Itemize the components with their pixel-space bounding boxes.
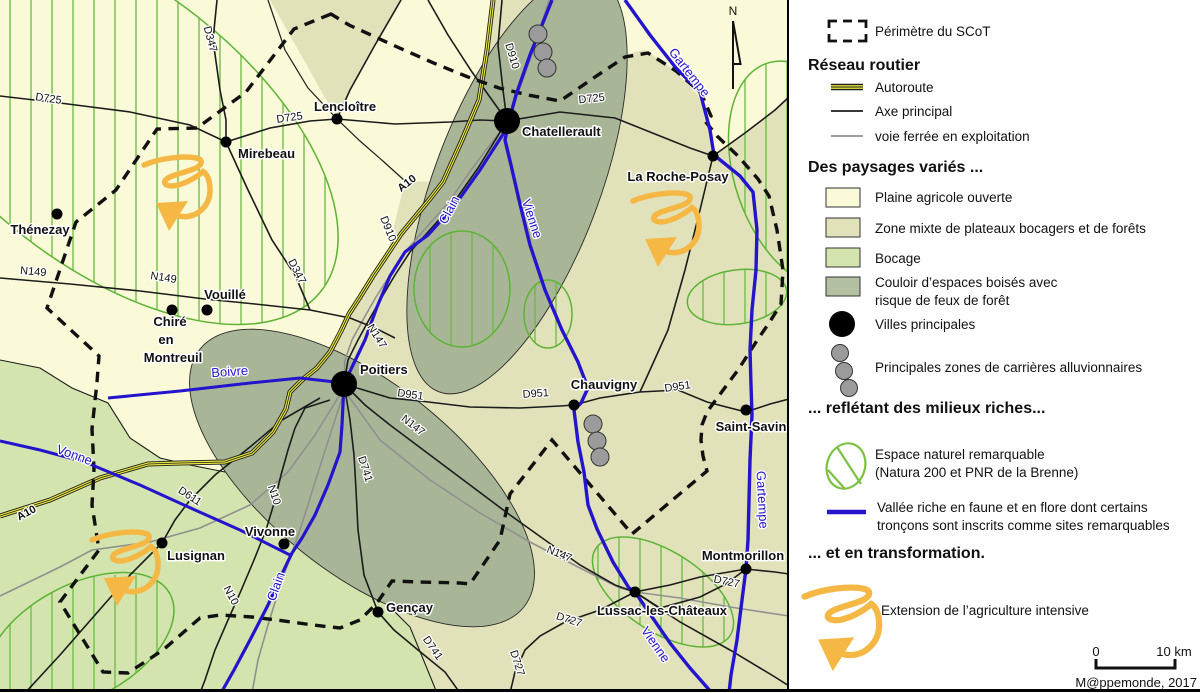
svg-text:Plaine agricole ouverte: Plaine agricole ouverte — [875, 190, 1012, 205]
svg-text:Principales zones de carrières: Principales zones de carrières alluvionn… — [875, 360, 1142, 375]
svg-text:Boivre: Boivre — [211, 363, 249, 381]
svg-text:Vivonne: Vivonne — [245, 524, 295, 539]
svg-text:Mirebeau: Mirebeau — [238, 146, 295, 161]
svg-text:en: en — [158, 332, 173, 347]
svg-text:Vallée riche en faune et en fl: Vallée riche en faune et en flore dont c… — [877, 500, 1148, 515]
svg-text:... et en transformation.: ... et en transformation. — [808, 545, 985, 562]
svg-text:Bocage: Bocage — [875, 251, 921, 266]
svg-text:Des paysages variés ...: Des paysages variés ... — [808, 159, 983, 176]
svg-text:Axe principal: Axe principal — [875, 104, 952, 119]
svg-text:10 km: 10 km — [1156, 644, 1191, 659]
svg-text:N149: N149 — [20, 265, 47, 279]
svg-text:risque de feux de forêt: risque de feux de forêt — [875, 293, 1010, 308]
svg-text:La Roche-Posay: La Roche-Posay — [627, 169, 729, 184]
svg-text:Villes principales: Villes principales — [875, 317, 976, 332]
svg-text:Réseau routier: Réseau routier — [808, 57, 920, 74]
svg-text:Chatellerault: Chatellerault — [522, 124, 601, 139]
svg-text:Zone mixte de plateaux bocager: Zone mixte de plateaux bocagers et de fo… — [875, 221, 1146, 236]
svg-text:Périmètre du SCoT: Périmètre du SCoT — [875, 24, 991, 39]
svg-text:Lussac-les-Châteaux: Lussac-les-Châteaux — [597, 603, 728, 618]
svg-text:... reflétant des milieux rich: ... reflétant des milieux riches... — [808, 400, 1045, 417]
svg-text:0: 0 — [1092, 644, 1099, 659]
svg-text:Couloir d’espaces boisés avec: Couloir d’espaces boisés avec — [875, 275, 1058, 290]
svg-text:Chauvigny: Chauvigny — [571, 377, 638, 392]
svg-text:Montmorillon: Montmorillon — [702, 548, 784, 563]
svg-text:Autoroute: Autoroute — [875, 80, 934, 95]
svg-text:Vouillé: Vouillé — [204, 287, 246, 302]
svg-text:Lencloître: Lencloître — [314, 99, 376, 114]
svg-text:(Natura 200 et PNR de la Brenn: (Natura 200 et PNR de la Brenne) — [875, 465, 1078, 480]
svg-text:Thénezay: Thénezay — [10, 222, 70, 237]
svg-text:Montreuil: Montreuil — [144, 350, 203, 365]
svg-text:N: N — [729, 4, 738, 18]
svg-text:Chiré: Chiré — [153, 314, 186, 329]
svg-text:D951: D951 — [522, 387, 549, 401]
svg-text:Lusignan: Lusignan — [167, 548, 225, 563]
svg-text:Gartempe: Gartempe — [753, 471, 771, 530]
svg-text:Gençay: Gençay — [386, 600, 434, 615]
svg-text:voie ferrée en exploitation: voie ferrée en exploitation — [875, 129, 1030, 144]
svg-text:Espace naturel remarquable: Espace naturel remarquable — [875, 447, 1045, 462]
svg-text:tronçons sont inscrits comme s: tronçons sont inscrits comme sites remar… — [877, 518, 1170, 533]
svg-text:Extension de l’agriculture int: Extension de l’agriculture intensive — [881, 603, 1089, 618]
svg-text:Saint-Savin: Saint-Savin — [716, 419, 787, 434]
svg-text:M@ppemonde, 2017: M@ppemonde, 2017 — [1075, 675, 1197, 690]
svg-text:Poitiers: Poitiers — [360, 362, 408, 377]
